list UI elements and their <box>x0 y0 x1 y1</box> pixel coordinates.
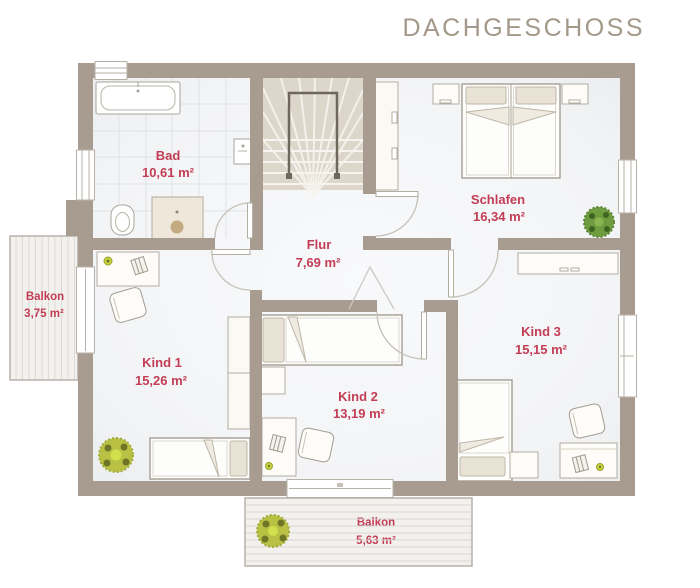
desk <box>97 252 159 286</box>
room-label: Bad <box>156 148 181 163</box>
floorplan-drawing: Balkon 3,75 m² Balkon 5,63 m² <box>0 0 700 588</box>
window-schlafen-east <box>619 160 637 213</box>
room-label: Schlafen <box>471 192 525 207</box>
nightstand <box>510 452 538 478</box>
handrail-post <box>286 173 292 179</box>
wall-east <box>620 63 635 496</box>
bathtub <box>96 82 180 114</box>
pillow <box>466 87 506 104</box>
nightstand <box>433 84 459 104</box>
shower <box>152 197 203 239</box>
room-area: 10,61 m² <box>142 165 195 180</box>
room-label: Kind 2 <box>338 389 378 404</box>
desk <box>560 443 617 478</box>
wall-kind2-kind3 <box>446 300 458 481</box>
wall-flur-south-a <box>250 300 377 312</box>
wall-stair-schlafen <box>363 78 376 194</box>
wardrobe <box>228 317 250 429</box>
room-label: Kind 1 <box>142 355 182 370</box>
page-title: DACHGESCHOSS <box>402 14 645 43</box>
room-label: Flur <box>307 237 332 252</box>
wall-bad-south <box>93 238 215 250</box>
desk <box>262 418 296 476</box>
wall-pier <box>66 200 78 236</box>
room-label: Kind 3 <box>521 324 561 339</box>
room-area: 15,15 m² <box>515 342 568 357</box>
wardrobe <box>374 82 398 190</box>
bed <box>150 438 250 479</box>
balcony-door-west <box>77 267 95 353</box>
double-bed <box>462 84 560 178</box>
plant <box>584 207 614 237</box>
window-bad-north <box>95 62 127 80</box>
washbasin <box>234 139 251 164</box>
wall-schlafen-south-a <box>363 238 451 250</box>
bed <box>260 315 402 365</box>
wall-schlafen-south-b <box>498 238 620 250</box>
plant <box>257 515 289 547</box>
pillow <box>263 318 284 362</box>
balcony-sued: Balkon 5,63 m² <box>245 498 472 566</box>
wall-north <box>78 63 635 78</box>
room-area: 5,63 m² <box>356 535 396 547</box>
staircase <box>263 78 363 196</box>
plant <box>99 438 133 472</box>
room-area: 3,75 m² <box>24 308 64 320</box>
pillow <box>230 441 247 476</box>
nightstand <box>261 367 285 394</box>
wall-kind1-kind2 <box>250 290 262 481</box>
floorplan-page: DACHGESCHOSS Balkon 3,75 m² Balk <box>0 0 700 588</box>
armchair <box>297 427 335 463</box>
window-bad-west <box>77 150 95 200</box>
window-kind3-east <box>619 315 637 397</box>
balcony-west: Balkon 3,75 m² <box>10 236 78 380</box>
armchair <box>568 403 606 439</box>
balcony-door-sued <box>287 480 393 498</box>
pillow <box>460 457 505 476</box>
room-area: 7,69 m² <box>296 255 341 270</box>
nightstand <box>562 84 588 104</box>
pillow <box>516 87 556 104</box>
toilet <box>111 205 134 235</box>
room-label: Balkon <box>26 291 64 303</box>
room-area: 13,19 m² <box>333 406 386 421</box>
sideboard <box>518 253 618 274</box>
bed <box>456 380 512 481</box>
room-area: 16,34 m² <box>473 209 526 224</box>
handrail-post <box>334 173 340 179</box>
room-area: 15,26 m² <box>135 373 188 388</box>
